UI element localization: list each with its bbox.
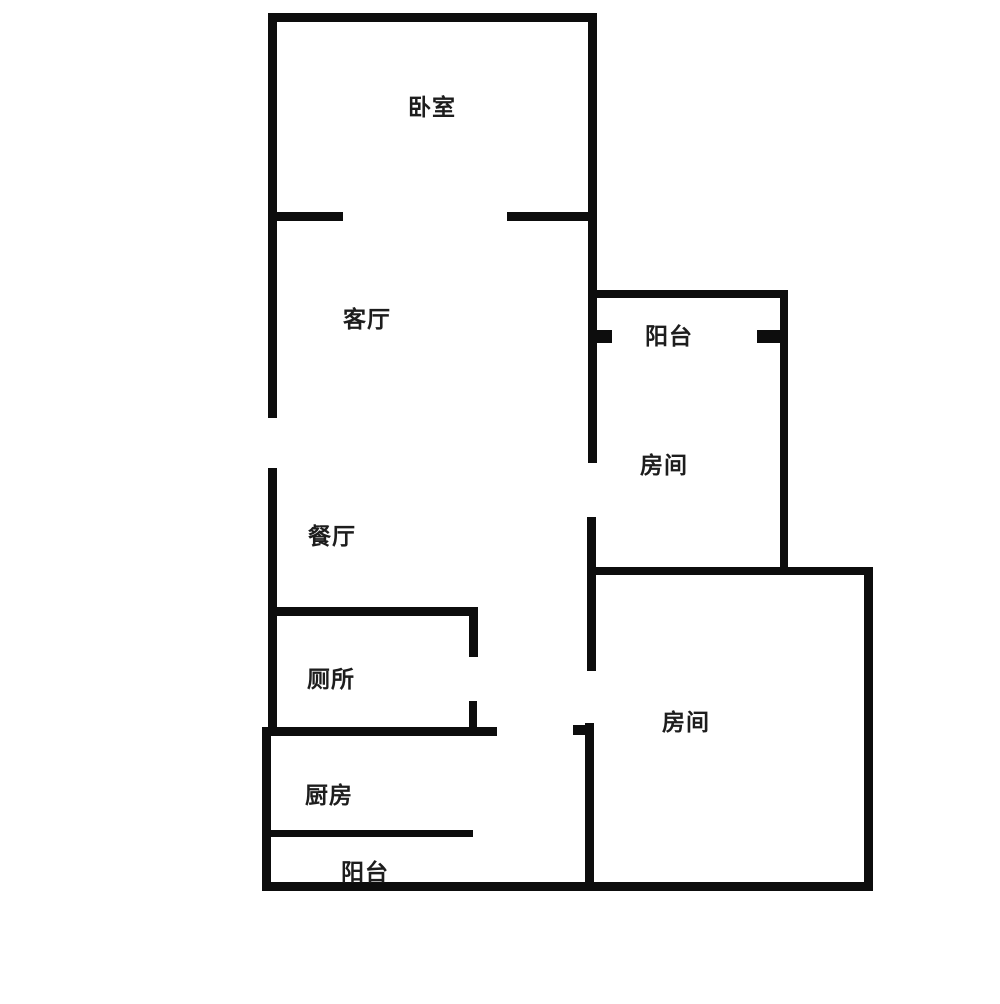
wall-left-mid <box>268 468 277 730</box>
wall-toilet-bottom <box>262 727 497 736</box>
room-label-dining-room: 餐厅 <box>308 526 356 549</box>
room-label-kitchen: 厨房 <box>305 785 353 808</box>
room-label-toilet: 厕所 <box>307 669 355 692</box>
room-label-bedroom: 卧室 <box>408 97 456 120</box>
floor-plan: 卧室 客厅 阳台 房间 餐厅 厕所 房间 厨房 阳台 <box>0 0 1000 1004</box>
room-label-room-right-upper: 房间 <box>640 455 688 478</box>
wall-left-lower <box>262 727 271 891</box>
wall-room-lower-top <box>588 567 873 575</box>
wall-middle-upper <box>588 13 597 463</box>
balcony-window-tick-right <box>757 330 780 343</box>
wall-top <box>268 13 597 22</box>
wall-toilet-top <box>268 607 478 616</box>
room-label-room-right-lower: 房间 <box>662 712 710 735</box>
wall-balcony-upper-right <box>780 290 788 571</box>
wall-kitchen-balcony-divider <box>268 830 473 837</box>
balcony-window-tick-left <box>593 330 612 343</box>
wall-right <box>864 567 873 891</box>
wall-toilet-right-upper <box>469 607 478 657</box>
wall-middle-door-jamb <box>573 725 591 735</box>
wall-middle-lower <box>585 723 594 891</box>
room-label-balcony-upper: 阳台 <box>645 326 693 349</box>
wall-middle-mid <box>587 517 596 671</box>
wall-balcony-upper-top <box>588 290 788 298</box>
wall-bedroom-bottom-right <box>507 212 597 221</box>
room-label-living-room: 客厅 <box>343 309 391 332</box>
room-label-balcony-lower: 阳台 <box>341 862 389 885</box>
wall-bedroom-bottom-left <box>268 212 343 221</box>
